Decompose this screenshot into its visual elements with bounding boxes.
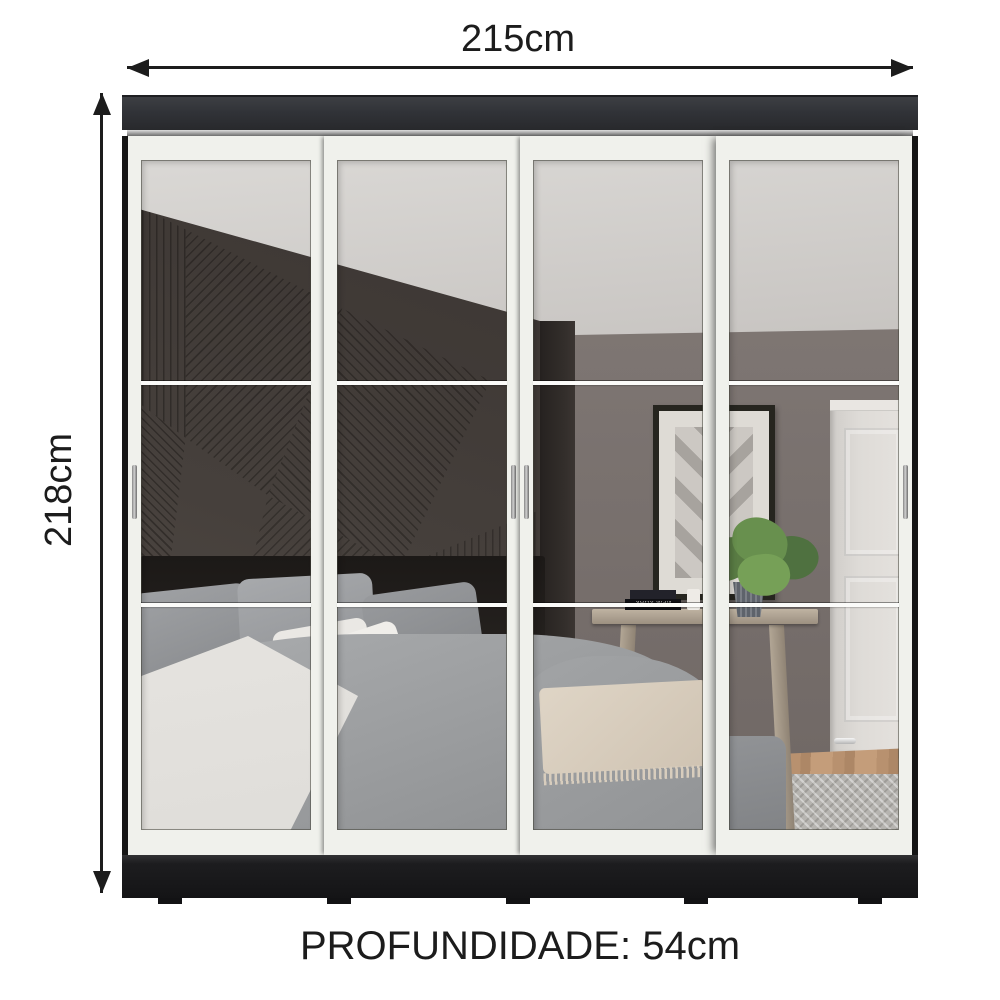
sliding-door-3	[520, 136, 716, 855]
door-handle	[132, 465, 137, 519]
mirror-divider	[141, 603, 311, 607]
wardrobe-top-panel	[122, 95, 918, 130]
door-handle	[511, 465, 516, 519]
mirror-divider	[141, 381, 311, 385]
mirror-panel	[337, 160, 507, 830]
door-handle	[524, 465, 529, 519]
mirror-divider	[729, 381, 899, 385]
wardrobe-foot	[327, 898, 351, 904]
wardrobe: NEW YORK	[122, 95, 918, 898]
mirror-panel	[141, 160, 311, 830]
wardrobe-foot	[684, 898, 708, 904]
mirror-divider	[337, 381, 507, 385]
width-dimension-arrow	[127, 66, 913, 69]
arrowhead-left-icon	[127, 59, 149, 77]
depth-dimension-label: PROFUNDIDADE: 54cm	[120, 926, 920, 966]
sliding-door-1	[128, 136, 324, 855]
sliding-door-4	[716, 136, 912, 855]
arrowhead-up-icon	[93, 93, 111, 115]
arrowhead-right-icon	[891, 59, 913, 77]
height-dimension-arrow	[100, 93, 103, 893]
wardrobe-foot	[158, 898, 182, 904]
mirror-divider	[337, 603, 507, 607]
product-dimension-diagram: 215cm 218cm	[0, 0, 1000, 1000]
mirror-divider	[533, 381, 703, 385]
width-dimension-label: 215cm	[123, 20, 913, 58]
height-dimension-label: 218cm	[40, 410, 82, 570]
wardrobe-base	[122, 855, 918, 898]
mirror-panel	[729, 160, 899, 830]
sliding-door-2	[324, 136, 520, 855]
door-handle	[903, 465, 908, 519]
arrowhead-down-icon	[93, 871, 111, 893]
mirror-divider	[533, 603, 703, 607]
wardrobe-foot	[858, 898, 882, 904]
mirror-panel	[533, 160, 703, 830]
wardrobe-foot	[506, 898, 530, 904]
mirror-divider	[729, 603, 899, 607]
